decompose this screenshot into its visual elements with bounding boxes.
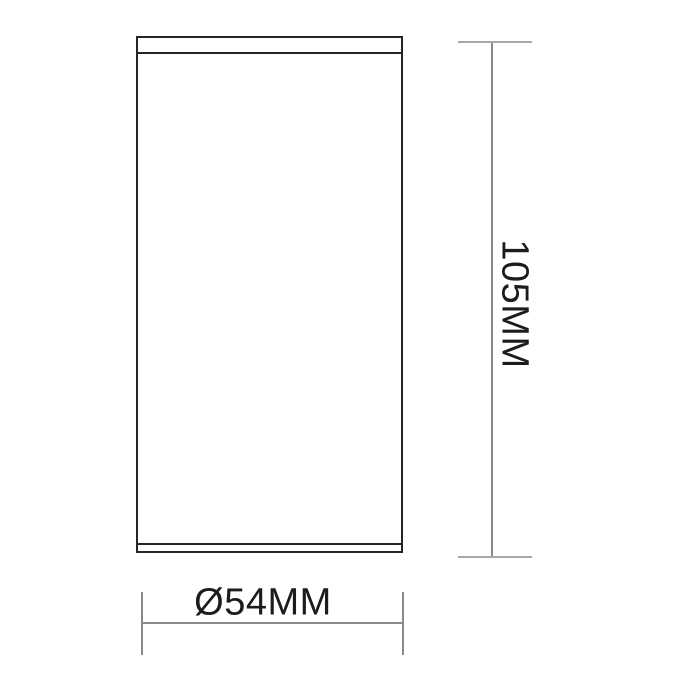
cylinder-top-cap-line bbox=[136, 52, 403, 54]
technical-drawing-canvas: 105MM Ø54MM bbox=[0, 0, 700, 700]
height-dimension-bottom-tick bbox=[458, 556, 532, 558]
height-dimension-top-tick bbox=[458, 41, 532, 43]
height-dimension-label: 105MM bbox=[493, 239, 536, 368]
cylinder-body-outline bbox=[136, 36, 403, 553]
diameter-extension-line-right bbox=[402, 592, 404, 655]
diameter-dimension-label: Ø54MM bbox=[194, 582, 332, 625]
diameter-extension-line-left bbox=[141, 592, 143, 655]
cylinder-bottom-cap-line bbox=[136, 543, 403, 545]
